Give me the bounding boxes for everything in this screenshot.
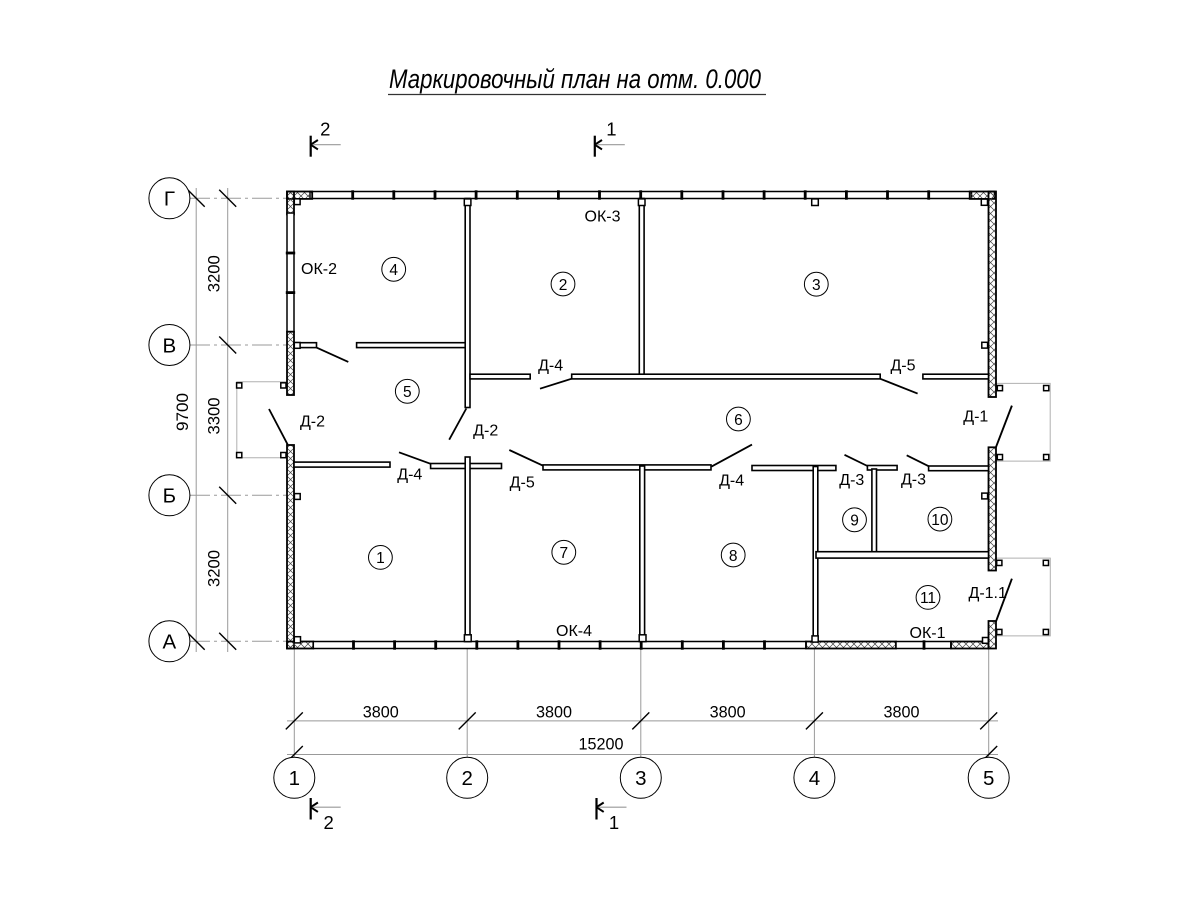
svg-text:3: 3 <box>812 277 821 294</box>
svg-text:5: 5 <box>983 767 994 790</box>
svg-text:Д-4: Д-4 <box>719 472 744 489</box>
svg-text:В: В <box>163 334 177 357</box>
svg-text:3800: 3800 <box>363 704 399 722</box>
svg-text:3: 3 <box>635 767 646 790</box>
svg-text:5: 5 <box>403 384 412 401</box>
svg-text:9700: 9700 <box>174 393 192 431</box>
svg-text:3800: 3800 <box>536 704 572 722</box>
svg-text:ОК-1: ОК-1 <box>910 625 946 642</box>
svg-text:3200: 3200 <box>206 550 224 587</box>
svg-text:Б: Б <box>163 485 176 508</box>
svg-text:2: 2 <box>461 767 472 790</box>
svg-text:3800: 3800 <box>884 704 920 722</box>
svg-text:Д-4: Д-4 <box>538 358 563 375</box>
svg-text:Д-2: Д-2 <box>473 423 498 440</box>
svg-text:1: 1 <box>606 119 616 140</box>
svg-text:15200: 15200 <box>579 736 624 754</box>
svg-text:2: 2 <box>320 119 330 140</box>
svg-text:1: 1 <box>289 767 300 790</box>
svg-text:9: 9 <box>850 513 859 530</box>
svg-text:Д-3: Д-3 <box>839 472 864 489</box>
svg-text:Г: Г <box>164 188 175 211</box>
svg-text:10: 10 <box>931 512 949 529</box>
svg-text:6: 6 <box>734 412 743 429</box>
svg-text:4: 4 <box>389 262 398 279</box>
svg-text:ОК-2: ОК-2 <box>301 261 337 278</box>
svg-text:Д-5: Д-5 <box>890 357 915 374</box>
svg-text:ОК-3: ОК-3 <box>585 209 621 226</box>
svg-text:А: А <box>163 631 177 654</box>
svg-text:3200: 3200 <box>206 255 224 292</box>
svg-text:3300: 3300 <box>206 398 224 435</box>
svg-text:Д-4: Д-4 <box>397 467 422 484</box>
svg-text:Д-2: Д-2 <box>300 413 325 430</box>
svg-text:2: 2 <box>559 277 568 294</box>
svg-text:1: 1 <box>376 550 385 567</box>
svg-text:ОК-4: ОК-4 <box>556 623 592 640</box>
svg-text:3800: 3800 <box>710 704 746 722</box>
svg-text:Д-1: Д-1 <box>963 409 988 426</box>
svg-text:1: 1 <box>609 812 619 833</box>
svg-text:7: 7 <box>559 545 568 562</box>
svg-text:11: 11 <box>920 590 936 607</box>
svg-text:Д-1.1: Д-1.1 <box>968 585 1007 602</box>
svg-text:Д-5: Д-5 <box>510 475 535 492</box>
svg-text:Маркировочный план на отм. 0.0: Маркировочный план на отм. 0.000 <box>389 64 761 94</box>
svg-text:8: 8 <box>729 548 738 565</box>
svg-text:4: 4 <box>809 767 820 790</box>
svg-text:Д-3: Д-3 <box>901 472 926 489</box>
svg-text:2: 2 <box>324 812 334 833</box>
